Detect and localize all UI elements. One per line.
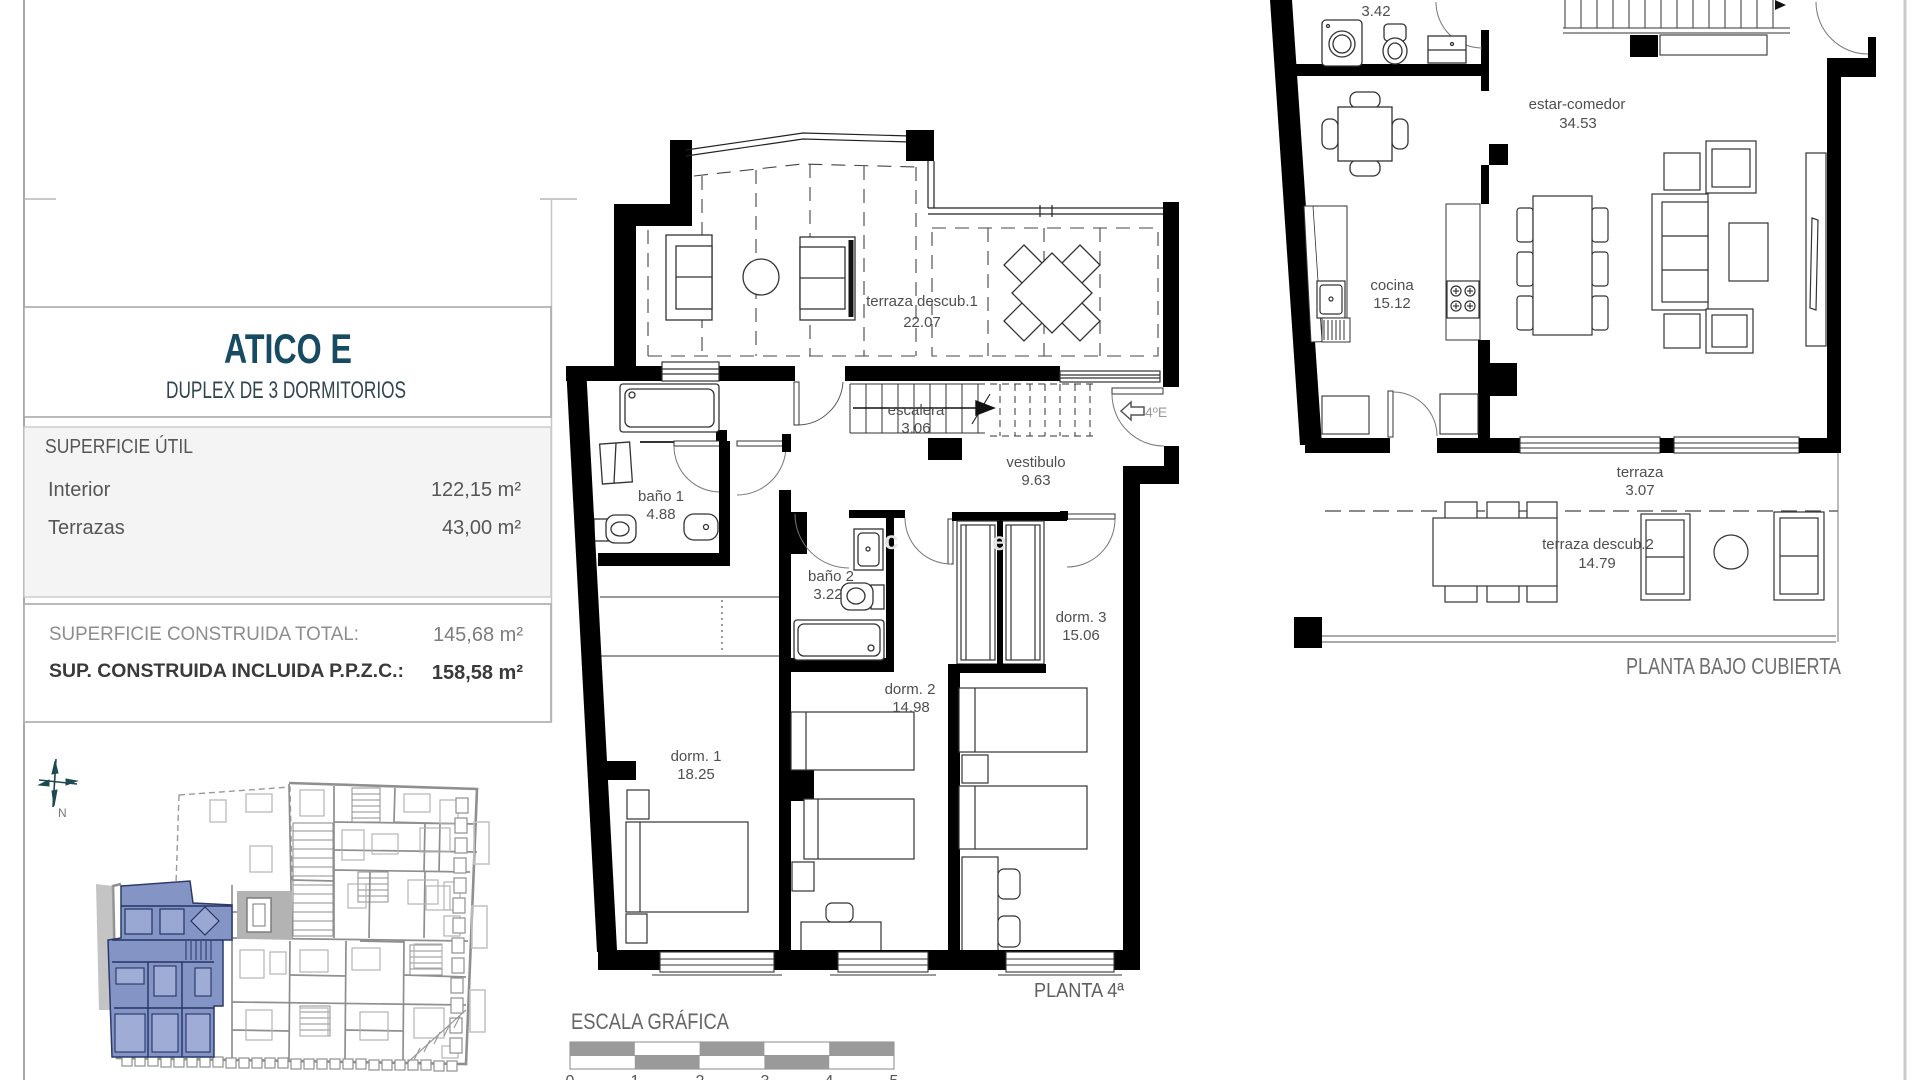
svg-text:PLANTA BAJO CUBIERTA: PLANTA BAJO CUBIERTA (1626, 653, 1842, 679)
svg-text:0: 0 (566, 1073, 575, 1080)
svg-text:PLANTA 4ª: PLANTA 4ª (1034, 980, 1125, 1002)
svg-text:dorm. 3: dorm. 3 (1056, 609, 1107, 626)
svg-text:9.63: 9.63 (1021, 472, 1050, 489)
svg-text:18.25: 18.25 (677, 766, 715, 783)
svg-text:15.06: 15.06 (1062, 627, 1100, 644)
svg-text:dorm. 1: dorm. 1 (671, 748, 722, 765)
svg-text:ATICO E: ATICO E (224, 325, 352, 372)
svg-text:SUPERFICIE CONSTRUIDA TOTAL:: SUPERFICIE CONSTRUIDA TOTAL: (49, 624, 359, 645)
svg-text:terraza descub.1: terraza descub.1 (866, 293, 978, 310)
svg-text:4: 4 (825, 1073, 834, 1080)
svg-text:terraza: terraza (1617, 464, 1664, 481)
svg-text:14.79: 14.79 (1578, 555, 1616, 572)
svg-text:e: e (992, 526, 1006, 556)
svg-text:1: 1 (631, 1073, 640, 1080)
svg-text:SUPERFICIE ÚTIL: SUPERFICIE ÚTIL (45, 435, 193, 458)
svg-text:SUP. CONSTRUIDA INCLUIDA P.P.Z: SUP. CONSTRUIDA INCLUIDA P.P.Z.C.: (49, 661, 404, 682)
svg-text:c: c (884, 525, 898, 555)
svg-text:14.98: 14.98 (892, 699, 930, 716)
svg-text:3.06: 3.06 (901, 420, 930, 437)
svg-text:122,15 m²: 122,15 m² (431, 479, 521, 501)
svg-text:ESCALA GRÁFICA: ESCALA GRÁFICA (571, 1009, 729, 1034)
svg-text:vestibulo: vestibulo (1006, 454, 1065, 471)
svg-text:4.88: 4.88 (646, 506, 675, 523)
svg-text:158,58 m²: 158,58 m² (432, 662, 524, 684)
svg-text:43,00 m²: 43,00 m² (442, 517, 521, 539)
svg-text:baño 2: baño 2 (808, 568, 854, 585)
svg-text:Terrazas: Terrazas (48, 517, 125, 539)
svg-text:145,68 m²: 145,68 m² (433, 624, 523, 646)
svg-text:4ºE: 4ºE (1145, 404, 1167, 420)
svg-text:3.07: 3.07 (1625, 482, 1654, 499)
svg-text:escalera: escalera (888, 402, 945, 419)
svg-text:2: 2 (696, 1073, 705, 1080)
svg-text:cocina: cocina (1370, 277, 1414, 294)
svg-text:22.07: 22.07 (903, 314, 941, 331)
svg-text:DUPLEX DE 3 DORMITORIOS: DUPLEX DE 3 DORMITORIOS (166, 377, 406, 404)
svg-text:3.42: 3.42 (1361, 3, 1390, 20)
svg-text:15.12: 15.12 (1373, 295, 1411, 312)
svg-text:Interior: Interior (48, 479, 111, 501)
svg-text:34.53: 34.53 (1559, 115, 1597, 132)
svg-text:baño 1: baño 1 (638, 488, 684, 505)
svg-text:terraza descub.2: terraza descub.2 (1542, 536, 1654, 553)
svg-text:N: N (58, 806, 67, 820)
svg-text:estar-comedor: estar-comedor (1529, 96, 1626, 113)
svg-text:3: 3 (761, 1073, 770, 1080)
svg-text:dorm. 2: dorm. 2 (885, 681, 936, 698)
svg-text:5: 5 (890, 1073, 899, 1080)
svg-text:3.22: 3.22 (813, 586, 842, 603)
